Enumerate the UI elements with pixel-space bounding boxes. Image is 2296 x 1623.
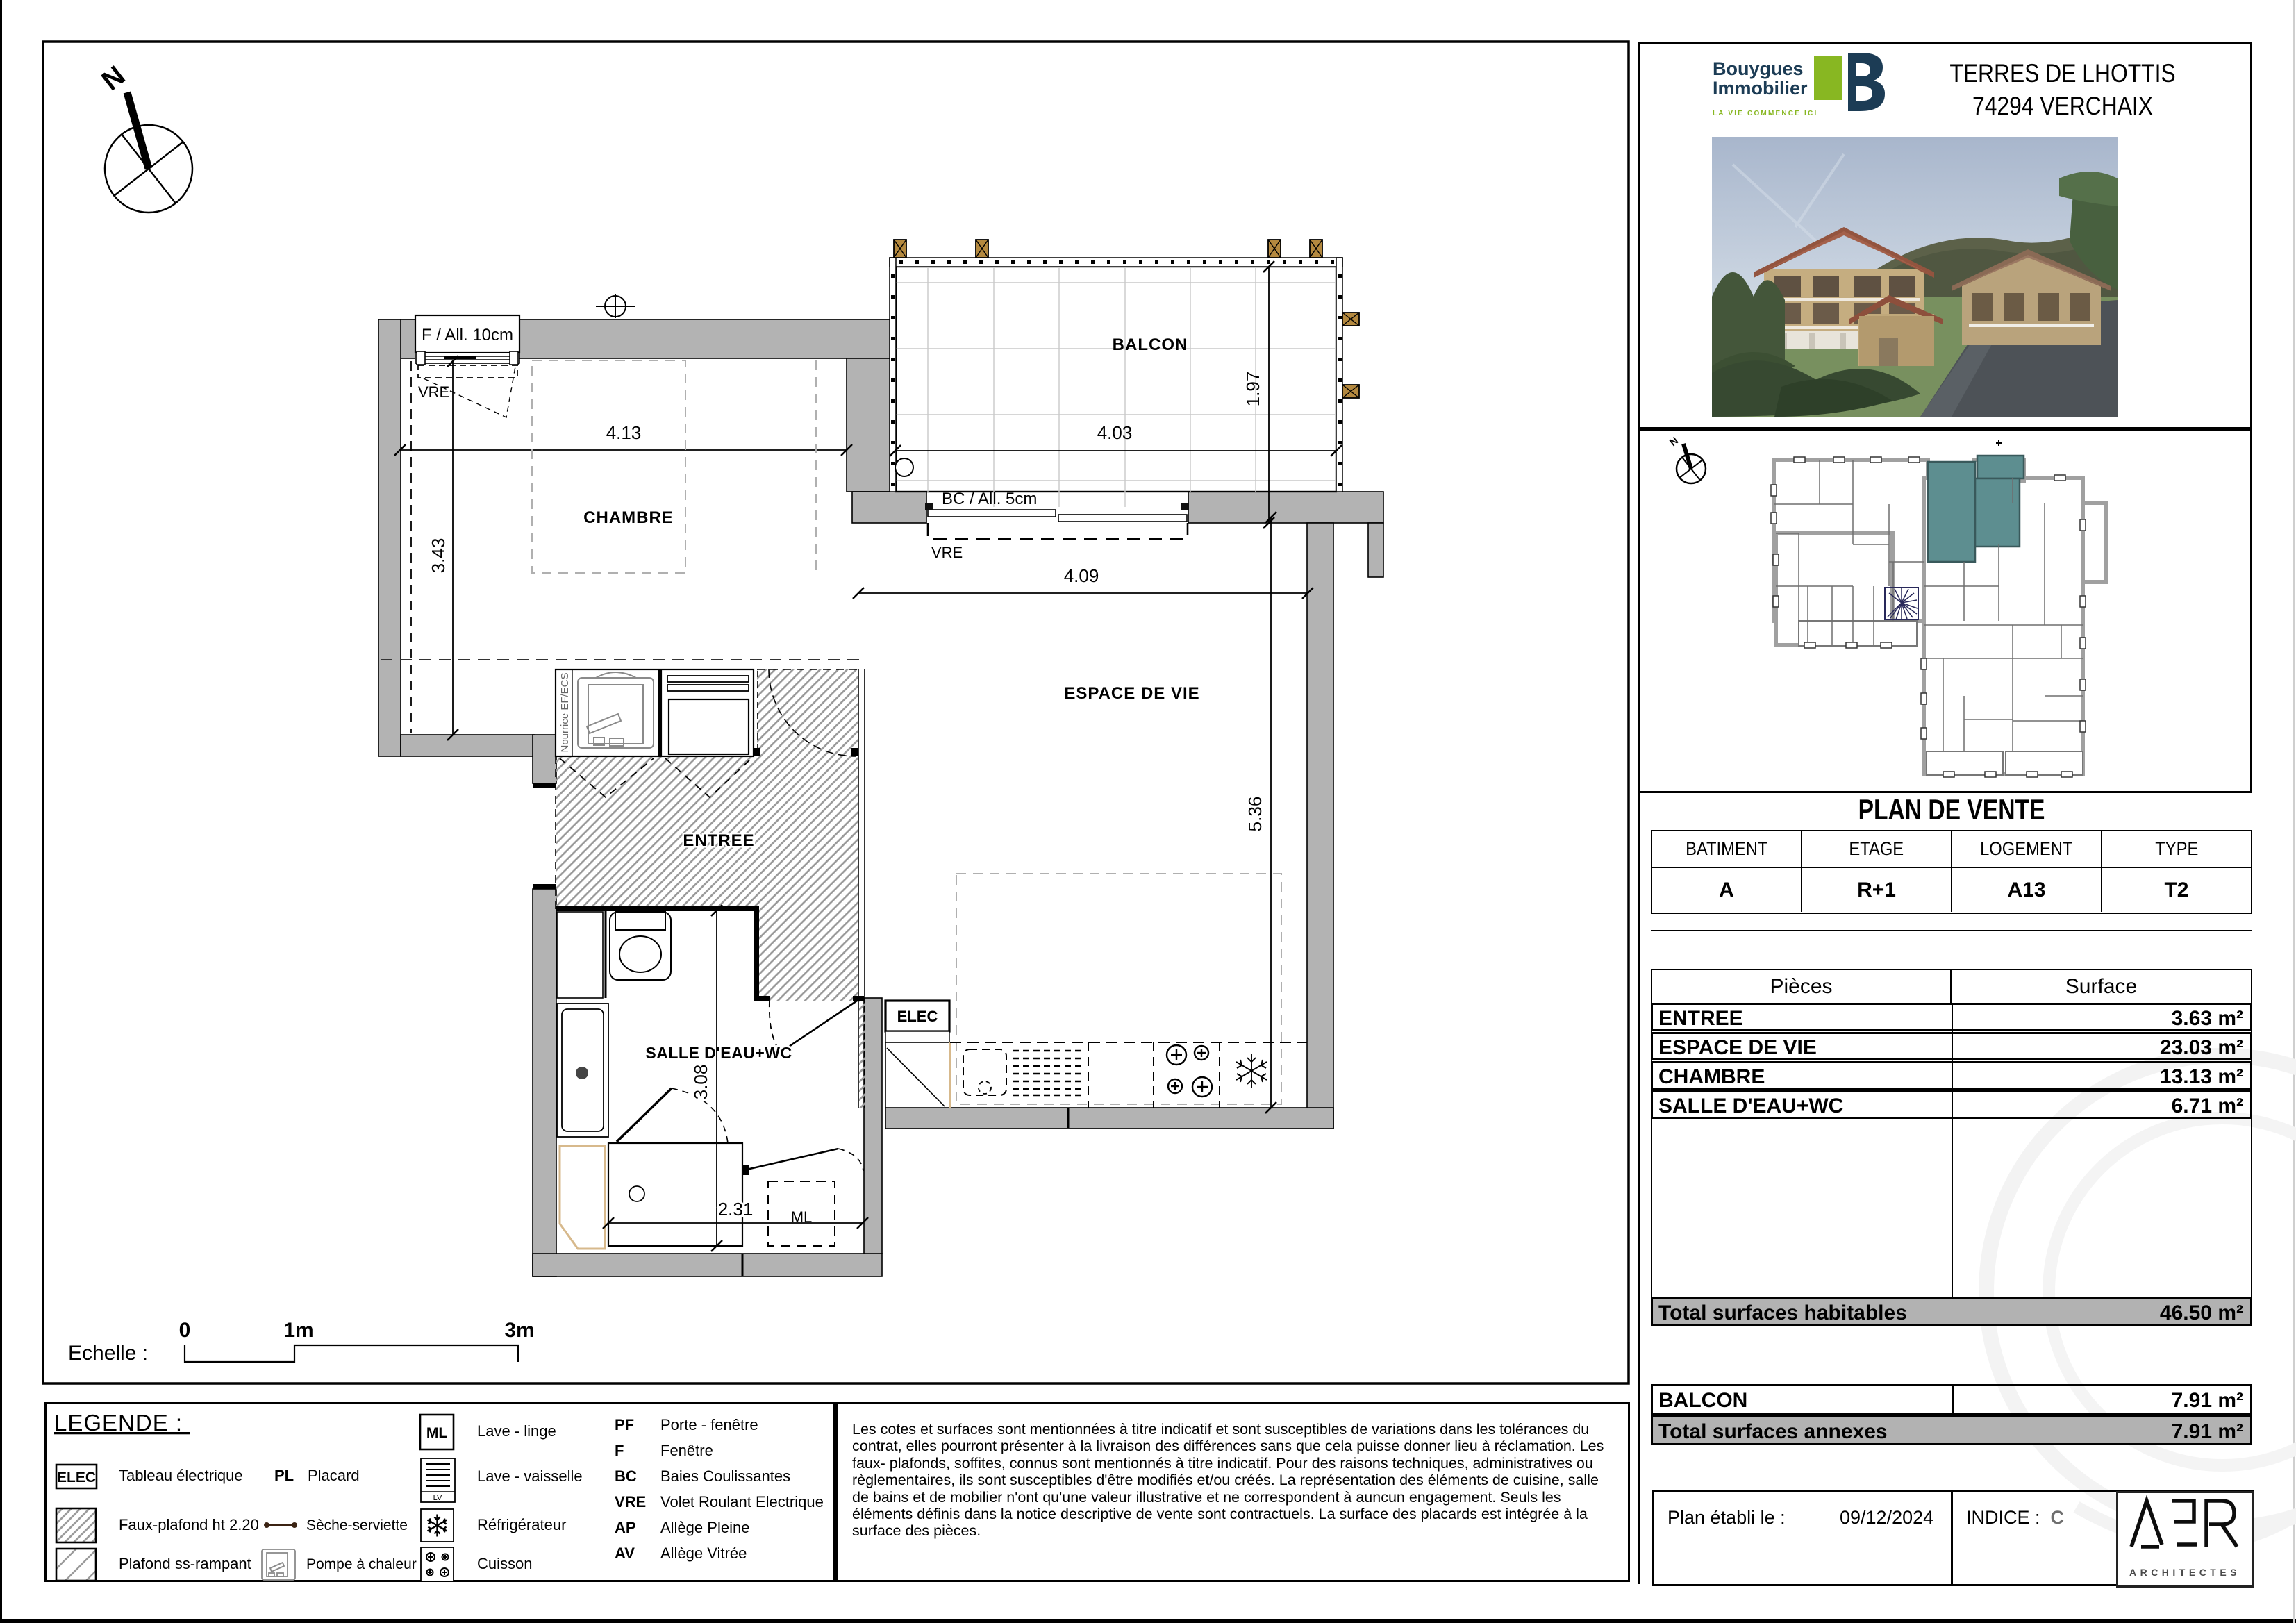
svg-text:Cuisson: Cuisson [477,1555,532,1572]
svg-text:LV: LV [433,1494,442,1502]
svg-text:VRE: VRE [615,1493,646,1510]
svg-text:Tableau électrique: Tableau électrique [119,1467,243,1484]
svg-text:AP: AP [615,1519,636,1536]
svg-text:Faux-plafond ht 2.20: Faux-plafond ht 2.20 [119,1516,259,1533]
svg-text:Allège Pleine: Allège Pleine [660,1519,749,1536]
svg-text:Plafond ss-rampant: Plafond ss-rampant [119,1555,251,1572]
svg-text:Allège Vitrée: Allège Vitrée [660,1545,747,1562]
svg-text:LA VIE COMMENCE ICI: LA VIE COMMENCE ICI [1713,110,1817,117]
svg-text:PF: PF [615,1416,634,1433]
svg-text:Baies Coulissantes: Baies Coulissantes [660,1467,790,1485]
svg-text:Volet Roulant Electrique: Volet Roulant Electrique [660,1493,824,1510]
svg-text:ARCHITECTES: ARCHITECTES [2129,1567,2240,1578]
svg-text:N: N [1667,435,1681,449]
svg-text:LEGENDE :: LEGENDE : [54,1410,190,1435]
svg-text:Placard: Placard [308,1467,360,1484]
svg-text:Lave - vaisselle: Lave - vaisselle [477,1467,583,1485]
svg-text:Pompe à chaleur: Pompe à chaleur [306,1556,417,1572]
svg-text:F: F [615,1442,624,1459]
svg-text:Lave - linge: Lave - linge [477,1422,556,1440]
svg-text:Sèche-serviette: Sèche-serviette [306,1517,408,1533]
svg-text:BC: BC [615,1467,637,1485]
svg-text:Réfrigérateur: Réfrigérateur [477,1516,566,1533]
svg-text:Bouygues: Bouygues [1713,58,1804,79]
svg-text:Immobilier: Immobilier [1713,78,1808,99]
svg-text:ML: ML [426,1425,447,1441]
svg-text:AV: AV [615,1545,635,1562]
svg-text:Fenêtre: Fenêtre [660,1442,713,1459]
svg-text:Porte - fenêtre: Porte - fenêtre [660,1416,758,1433]
svg-text:ELEC: ELEC [57,1470,96,1485]
svg-text:PL: PL [274,1467,294,1484]
